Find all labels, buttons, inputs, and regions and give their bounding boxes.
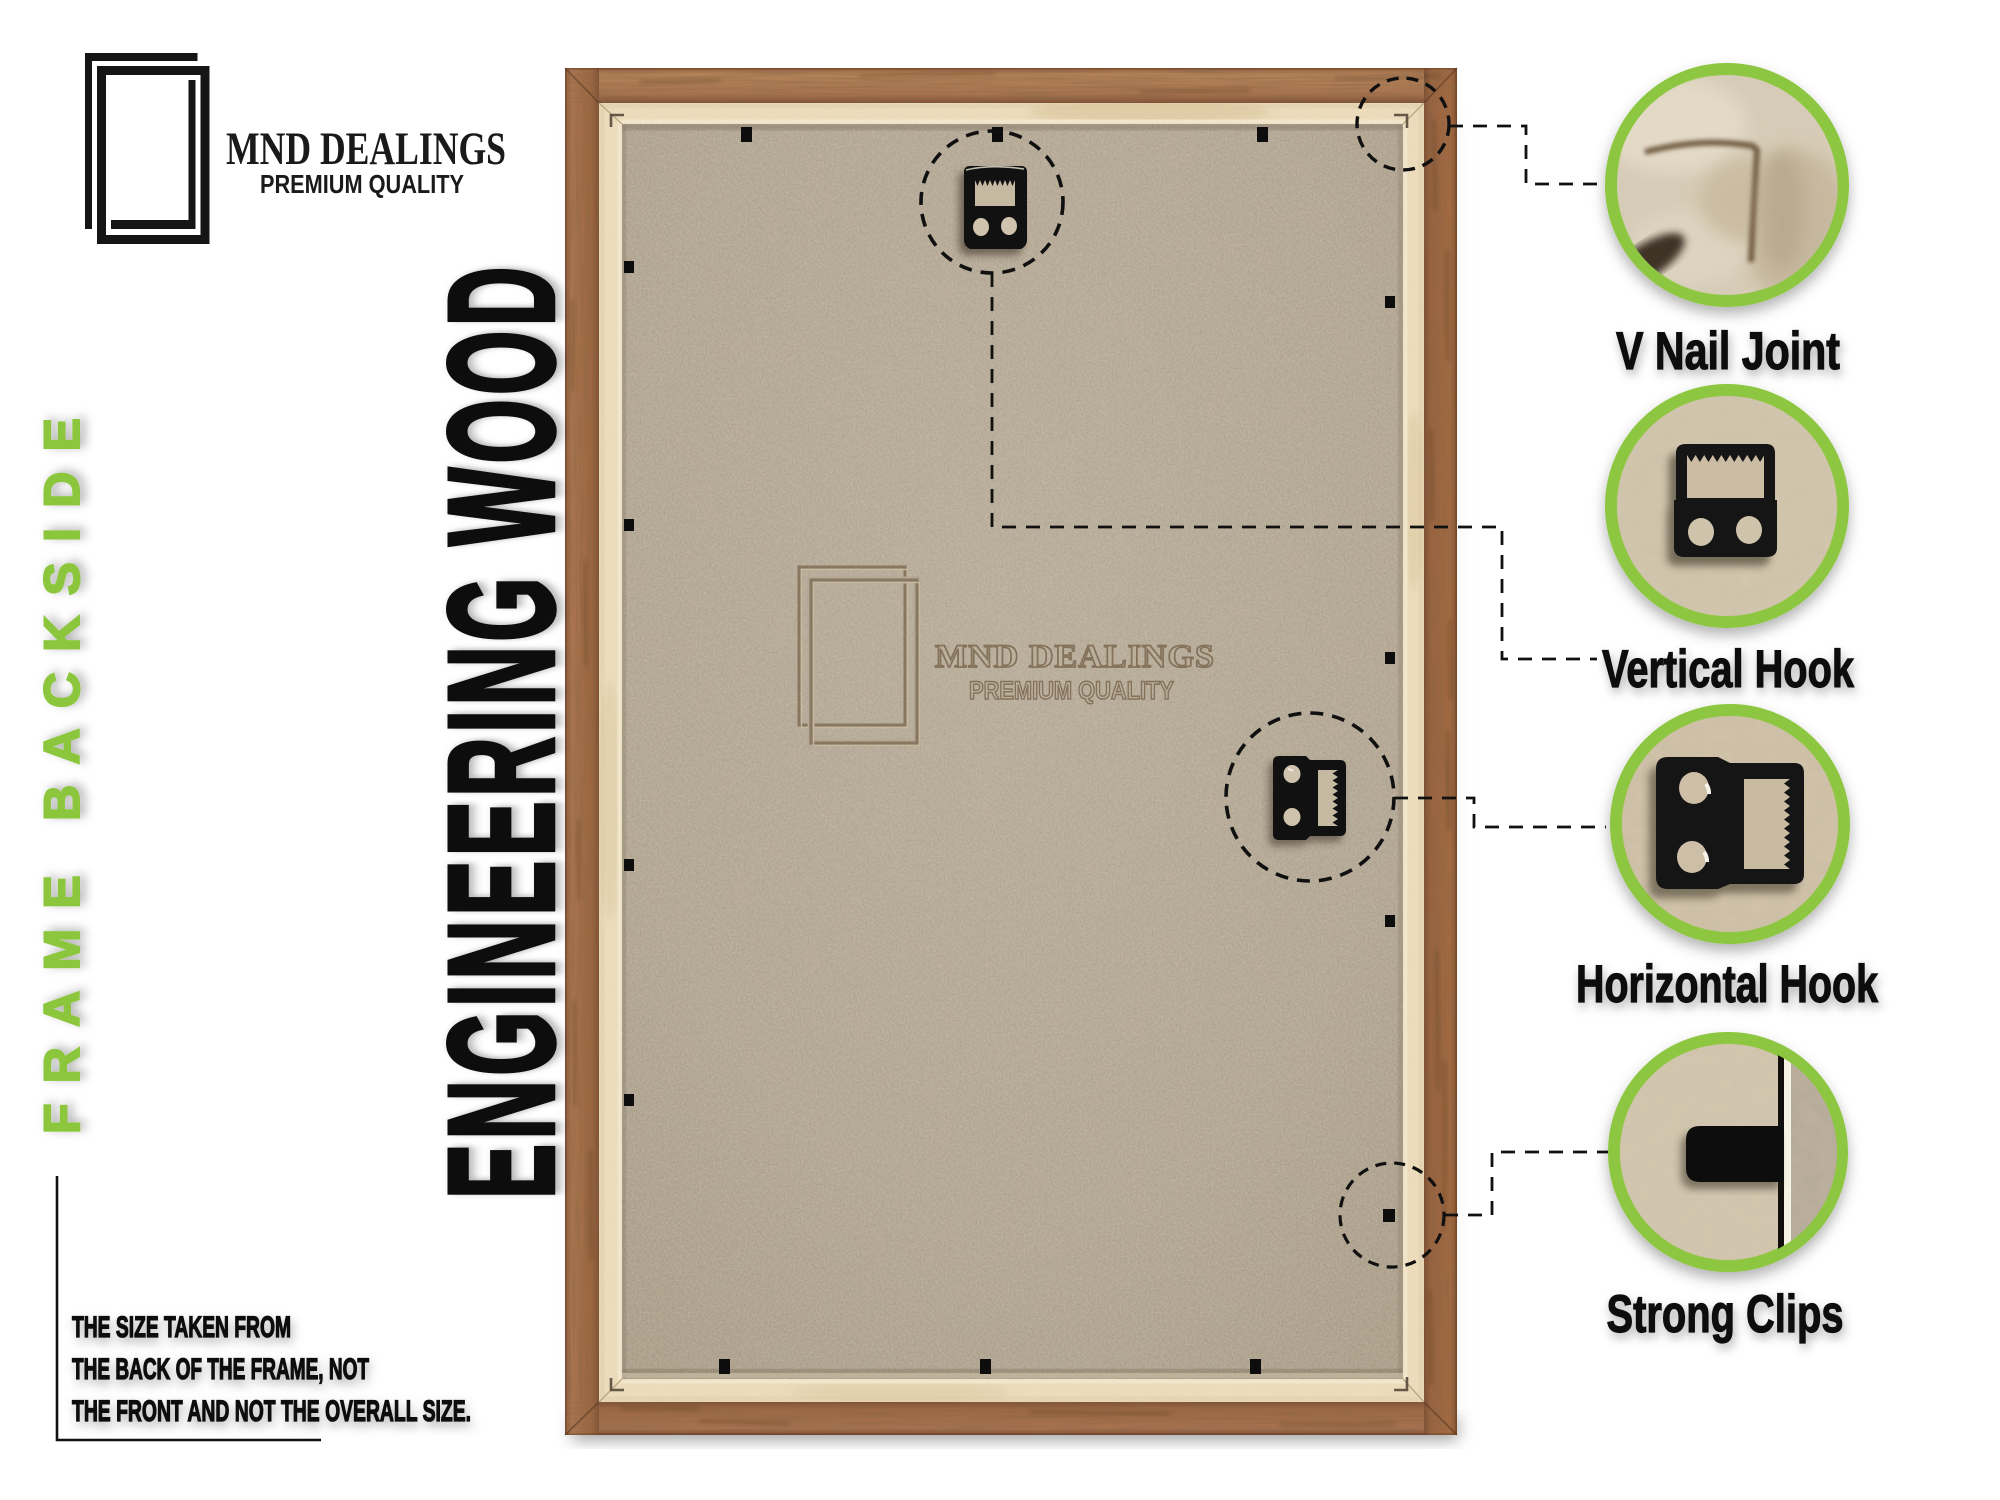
svg-text:Horizontal Hook: Horizontal Hook (1576, 955, 1878, 1014)
svg-text:PREMIUM QUALITY: PREMIUM QUALITY (969, 677, 1174, 705)
svg-text:THE FRONT AND NOT THE OVERALL: THE FRONT AND NOT THE OVERALL SIZE. (72, 1395, 471, 1428)
svg-text:THE BACK OF THE FRAME, NOT: THE BACK OF THE FRAME, NOT (72, 1353, 369, 1386)
svg-text:THE SIZE TAKEN FROM: THE SIZE TAKEN FROM (72, 1311, 291, 1344)
svg-text:V Nail Joint: V Nail Joint (1616, 322, 1840, 381)
svg-text:Strong Clips: Strong Clips (1607, 1285, 1844, 1344)
svg-text:MND DEALINGS: MND DEALINGS (935, 639, 1215, 675)
svg-text:PREMIUM QUALITY: PREMIUM QUALITY (260, 169, 464, 199)
svg-text:Vertical Hook: Vertical Hook (1602, 640, 1854, 699)
svg-text:ENGINEERING WOOD: ENGINEERING WOOD (417, 262, 586, 1199)
svg-text:MND DEALINGS: MND DEALINGS (226, 123, 506, 175)
